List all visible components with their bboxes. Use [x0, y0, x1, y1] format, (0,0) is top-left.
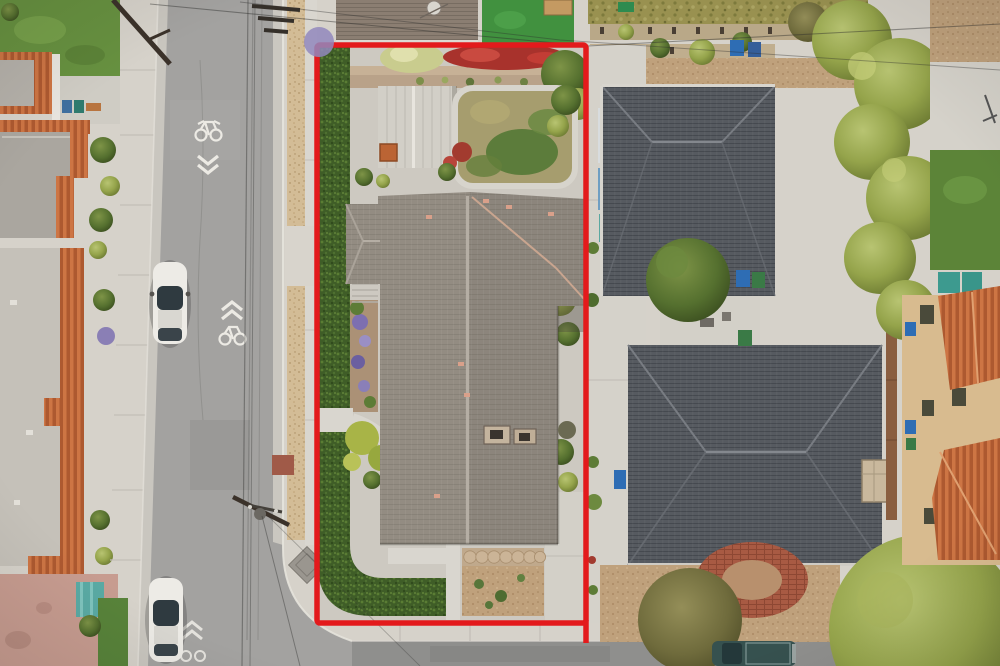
aerial-photo: [0, 0, 1000, 666]
photo-vignette: [0, 0, 1000, 666]
